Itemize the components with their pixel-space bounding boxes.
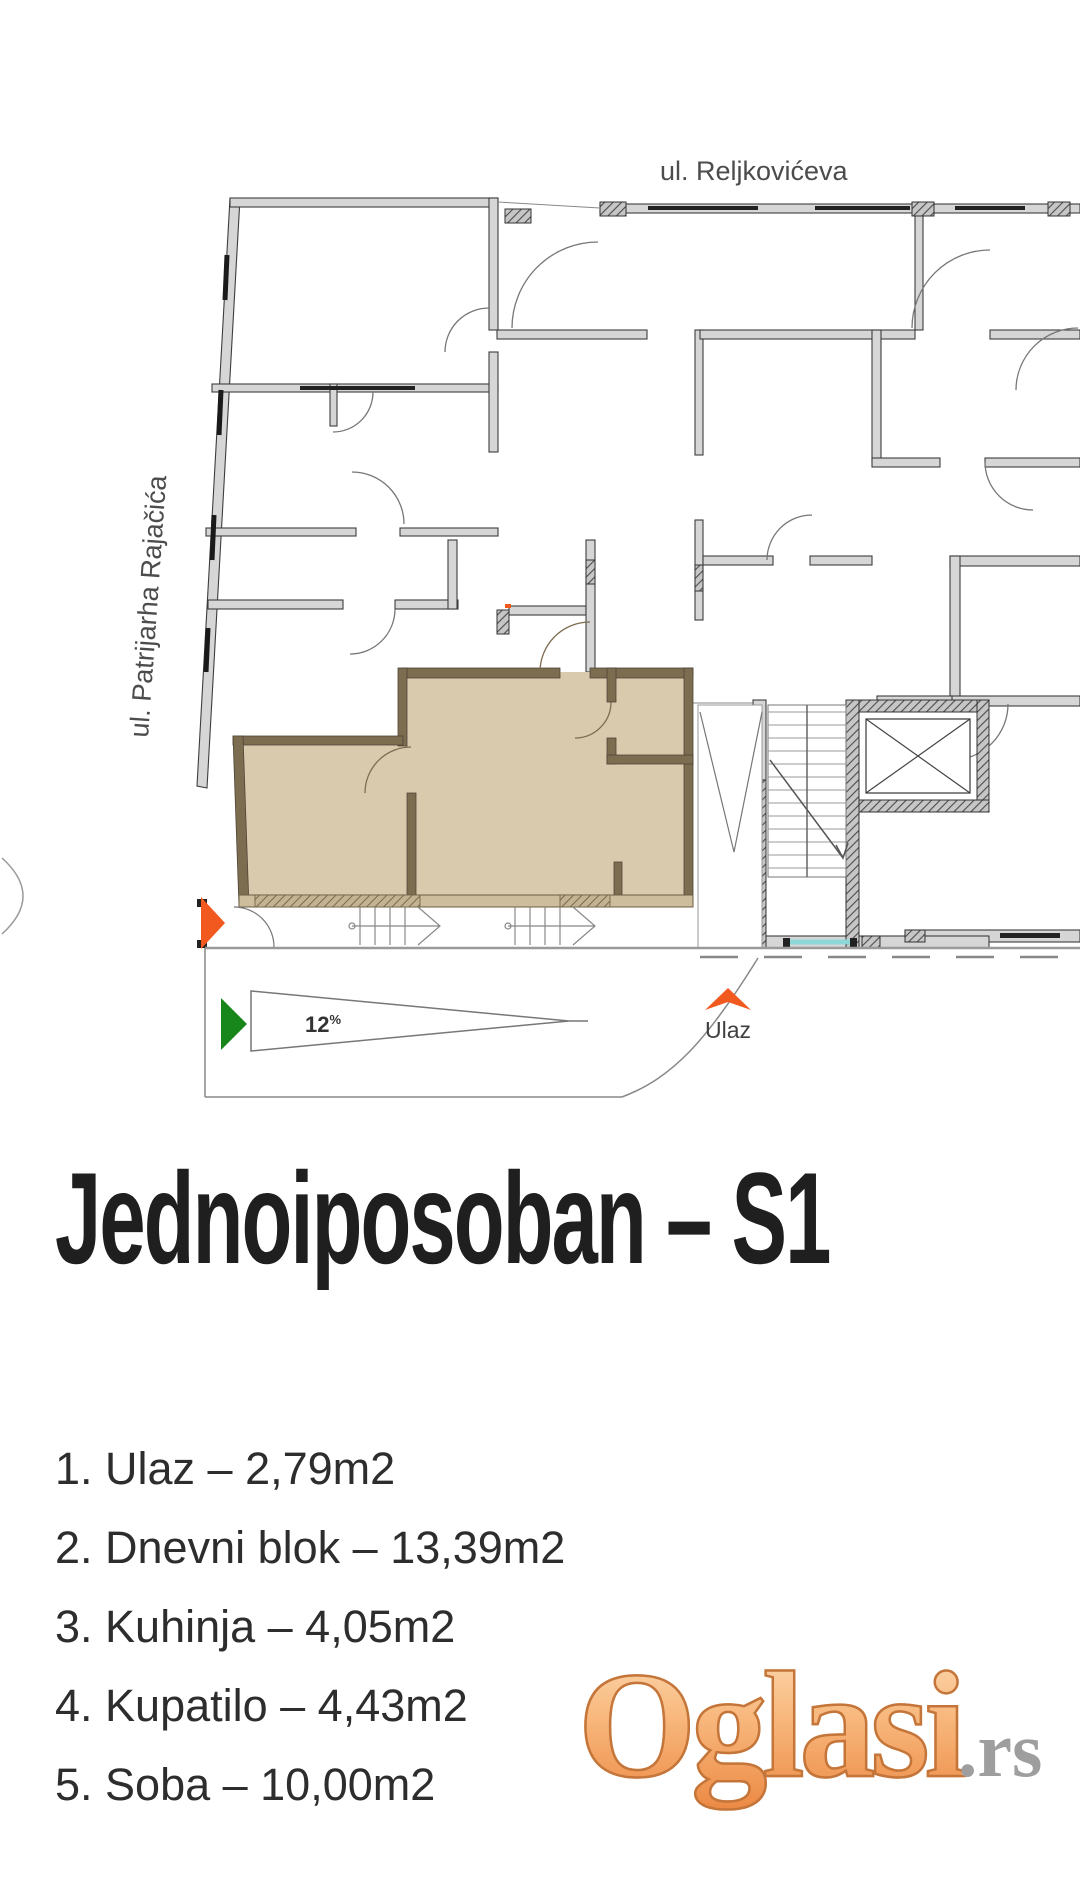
- entrance-label: Ulaz: [705, 1017, 751, 1043]
- room-list-item: 2. Dnevni blok – 13,39m2: [55, 1525, 565, 1571]
- direction-arrow-orange-icon: [201, 897, 225, 949]
- room-list-item: 5. Soba – 10,00m2: [55, 1762, 565, 1808]
- elevator: [859, 700, 989, 812]
- street-label-top: ul. Reljkovićeva: [660, 156, 849, 186]
- watermark-brand: Oglasi: [578, 1641, 962, 1809]
- entrance-arrow-icon: [705, 988, 751, 1010]
- unit-highlight: [233, 622, 693, 907]
- room-list-item: 4. Kupatilo – 4,43m2: [55, 1683, 565, 1729]
- ramp: 12%: [251, 991, 588, 1051]
- watermark-suffix: .rs: [958, 1706, 1042, 1793]
- direction-arrow-green-icon: [221, 998, 247, 1050]
- stairs: [698, 700, 859, 948]
- room-list-item: 1. Ulaz – 2,79m2: [55, 1446, 565, 1492]
- exterior-stairs: [349, 907, 595, 945]
- watermark-logo: Oglasi.rs: [578, 1638, 1042, 1812]
- entrance-marker: Ulaz: [705, 988, 751, 1043]
- street-label-left: ul. Patrijarha Rajačića: [124, 473, 172, 738]
- plan-orange-tick: [505, 604, 511, 608]
- floor-plan-svg: ul. Reljkovićeva ul. Patrijarha Rajačića: [0, 0, 1080, 1135]
- room-list: 1. Ulaz – 2,79m2 2. Dnevni blok – 13,39m…: [55, 1446, 565, 1841]
- page-title: Jednoiposoban – S1: [55, 1150, 823, 1287]
- floor-plan: ul. Reljkovićeva ul. Patrijarha Rajačića: [0, 0, 1080, 1135]
- room-list-item: 3. Kuhinja – 4,05m2: [55, 1604, 565, 1650]
- listing-image: ul. Reljkovićeva ul. Patrijarha Rajačića: [0, 0, 1080, 1890]
- thin-lines: [498, 202, 753, 703]
